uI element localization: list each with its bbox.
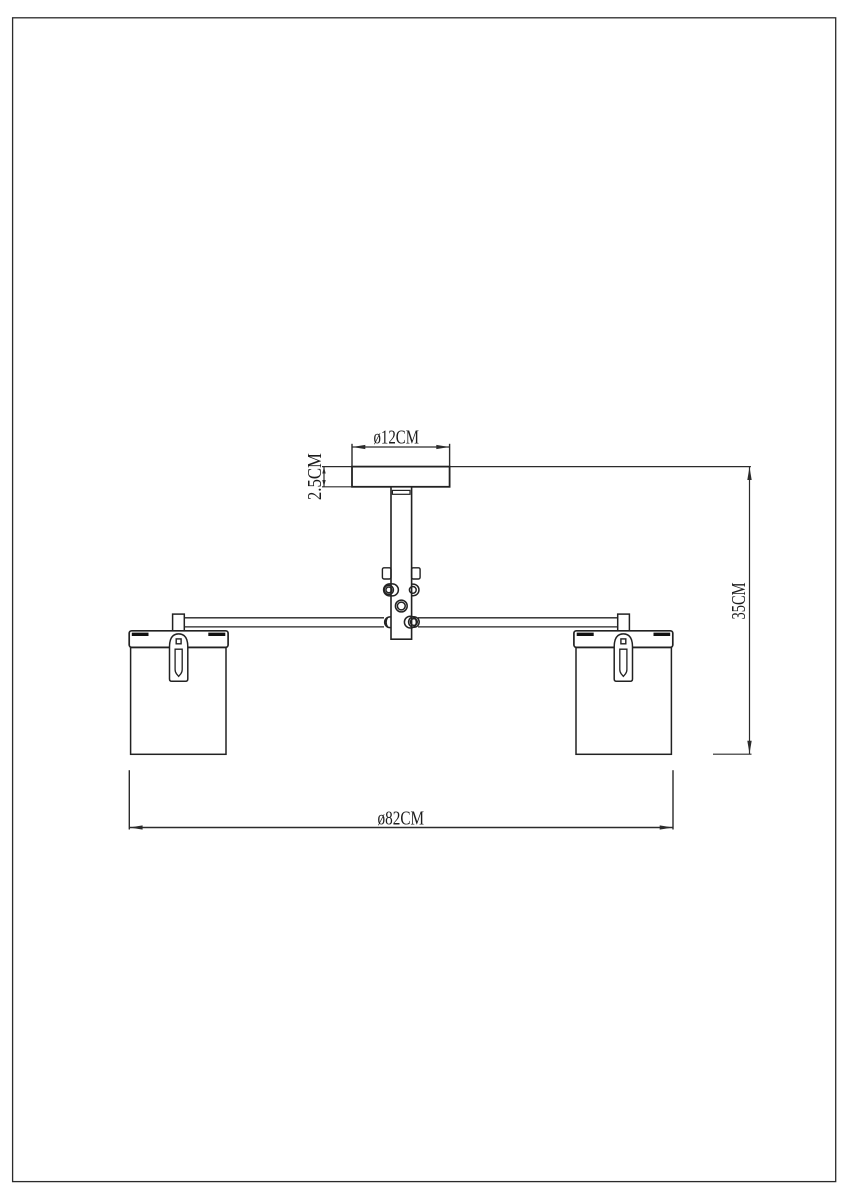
svg-text:ø82CM: ø82CM <box>378 808 425 829</box>
svg-text:35CM: 35CM <box>729 583 750 620</box>
svg-text:ø12CM: ø12CM <box>373 428 419 449</box>
svg-text:2.5CM: 2.5CM <box>305 453 326 500</box>
